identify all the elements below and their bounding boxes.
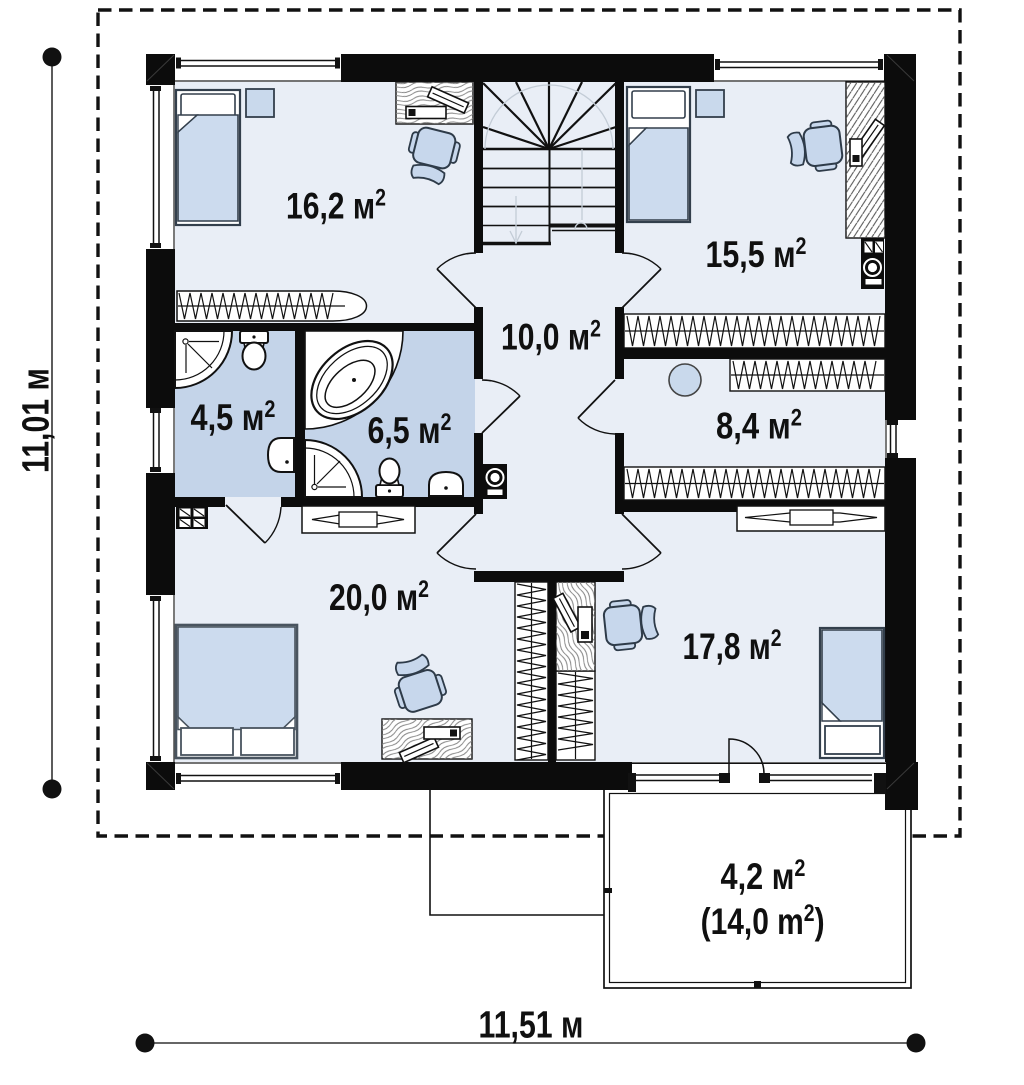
svg-text:8,4 м2: 8,4 м2 — [716, 404, 802, 447]
svg-text:15,5 м2: 15,5 м2 — [706, 232, 807, 276]
svg-text:20,0 м2: 20,0 м2 — [329, 575, 429, 619]
svg-text:10,0 м2: 10,0 м2 — [501, 315, 601, 359]
svg-text:11,01 м: 11,01 м — [15, 368, 57, 473]
svg-text:4,5 м2: 4,5 м2 — [191, 395, 276, 438]
svg-text:17,8 м2: 17,8 м2 — [682, 624, 781, 668]
svg-text:4,2 м2: 4,2 м2 — [721, 854, 806, 897]
svg-text:6,5 м2: 6,5 м2 — [368, 408, 452, 452]
svg-text:11,51 м: 11,51 м — [479, 1004, 584, 1046]
svg-text:16,2 м2: 16,2 м2 — [286, 184, 386, 228]
